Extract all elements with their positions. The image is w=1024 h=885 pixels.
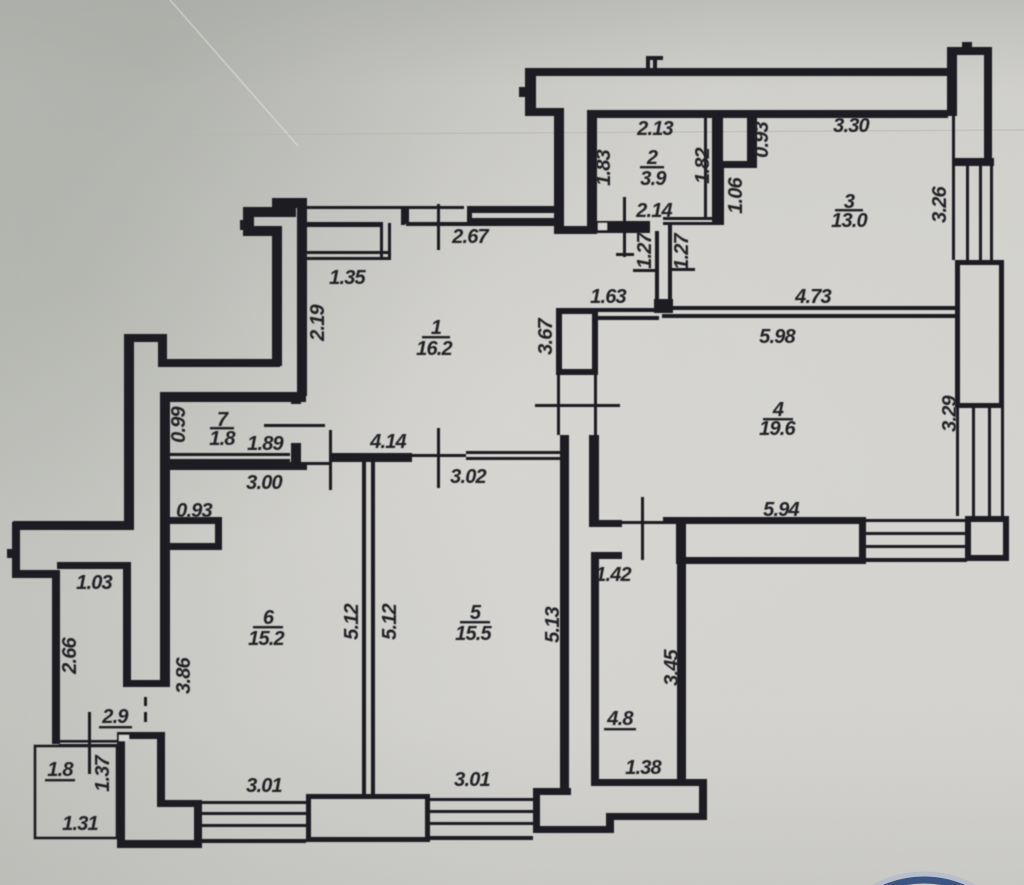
svg-text:1.06: 1.06	[725, 176, 747, 213]
svg-text:3.45: 3.45	[661, 648, 683, 685]
svg-text:4.14: 4.14	[369, 431, 406, 453]
svg-text:2: 2	[646, 147, 658, 169]
svg-text:0.93: 0.93	[751, 121, 773, 157]
svg-text:5.98: 5.98	[759, 326, 796, 348]
svg-text:3.9: 3.9	[640, 168, 667, 190]
svg-text:1.63: 1.63	[590, 286, 626, 308]
svg-text:3.30: 3.30	[833, 115, 869, 137]
svg-text:3.86: 3.86	[173, 656, 195, 693]
svg-text:1.42: 1.42	[595, 564, 631, 586]
svg-text:1.82: 1.82	[692, 147, 714, 183]
svg-text:1.27: 1.27	[671, 232, 693, 269]
svg-text:13.0: 13.0	[831, 210, 867, 232]
svg-text:1.03: 1.03	[76, 572, 112, 594]
svg-text:2.13: 2.13	[636, 118, 673, 140]
svg-text:1.31: 1.31	[62, 813, 98, 835]
svg-text:1.8: 1.8	[209, 428, 236, 450]
svg-text:16.2: 16.2	[416, 338, 452, 360]
svg-text:1.83: 1.83	[593, 149, 615, 185]
svg-text:2.19: 2.19	[307, 303, 329, 341]
svg-text:3.67: 3.67	[535, 317, 557, 354]
svg-text:2.66: 2.66	[59, 636, 81, 674]
svg-text:1.27: 1.27	[634, 231, 656, 268]
svg-text:1: 1	[431, 317, 442, 339]
svg-text:1.37: 1.37	[92, 754, 114, 791]
svg-text:0.93: 0.93	[176, 500, 212, 522]
svg-text:2.67: 2.67	[451, 226, 489, 248]
svg-text:15.5: 15.5	[455, 623, 492, 645]
svg-text:5.12: 5.12	[379, 603, 401, 639]
svg-text:4.8: 4.8	[606, 708, 634, 730]
svg-text:1.89: 1.89	[247, 433, 284, 455]
svg-text:4.73: 4.73	[794, 286, 831, 308]
svg-text:0.99: 0.99	[168, 405, 190, 442]
svg-text:3.29: 3.29	[939, 394, 961, 431]
svg-text:1.8: 1.8	[47, 759, 74, 781]
svg-text:5.12: 5.12	[341, 603, 363, 639]
svg-text:3.01: 3.01	[454, 769, 490, 791]
svg-text:5.13: 5.13	[542, 606, 564, 642]
svg-text:1.38: 1.38	[625, 757, 662, 779]
svg-text:2.9: 2.9	[101, 706, 129, 728]
svg-text:15.2: 15.2	[248, 628, 284, 650]
svg-text:5: 5	[470, 602, 482, 624]
svg-text:2.14: 2.14	[635, 200, 672, 222]
svg-text:5.94: 5.94	[763, 499, 799, 521]
svg-text:6: 6	[263, 607, 275, 629]
svg-text:3.02: 3.02	[450, 466, 486, 488]
svg-text:3.01: 3.01	[246, 775, 282, 797]
svg-text:3.26: 3.26	[929, 185, 951, 222]
svg-text:3.00: 3.00	[246, 472, 282, 494]
svg-text:19.6: 19.6	[759, 418, 796, 440]
svg-text:1.35: 1.35	[329, 267, 366, 289]
